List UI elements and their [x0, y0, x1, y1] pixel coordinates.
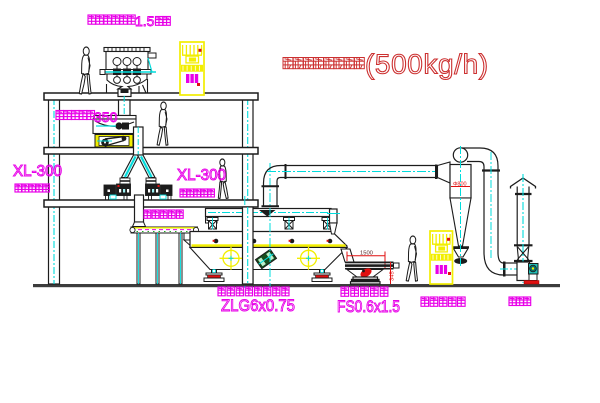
svg-text:1500: 1500 — [360, 251, 373, 257]
svg-text:XL-300: XL-300 — [13, 163, 62, 180]
svg-text:1.5: 1.5 — [135, 13, 155, 29]
svg-text:345: 345 — [390, 271, 396, 281]
svg-text:ZLG6x0.75: ZLG6x0.75 — [221, 296, 295, 315]
svg-text:(500kg/h): (500kg/h) — [365, 49, 489, 80]
svg-text:350: 350 — [94, 109, 118, 125]
svg-text:XL-300: XL-300 — [177, 167, 226, 184]
svg-text:FS0.6x1.5: FS0.6x1.5 — [337, 297, 400, 316]
svg-text:Φ800: Φ800 — [453, 182, 467, 188]
